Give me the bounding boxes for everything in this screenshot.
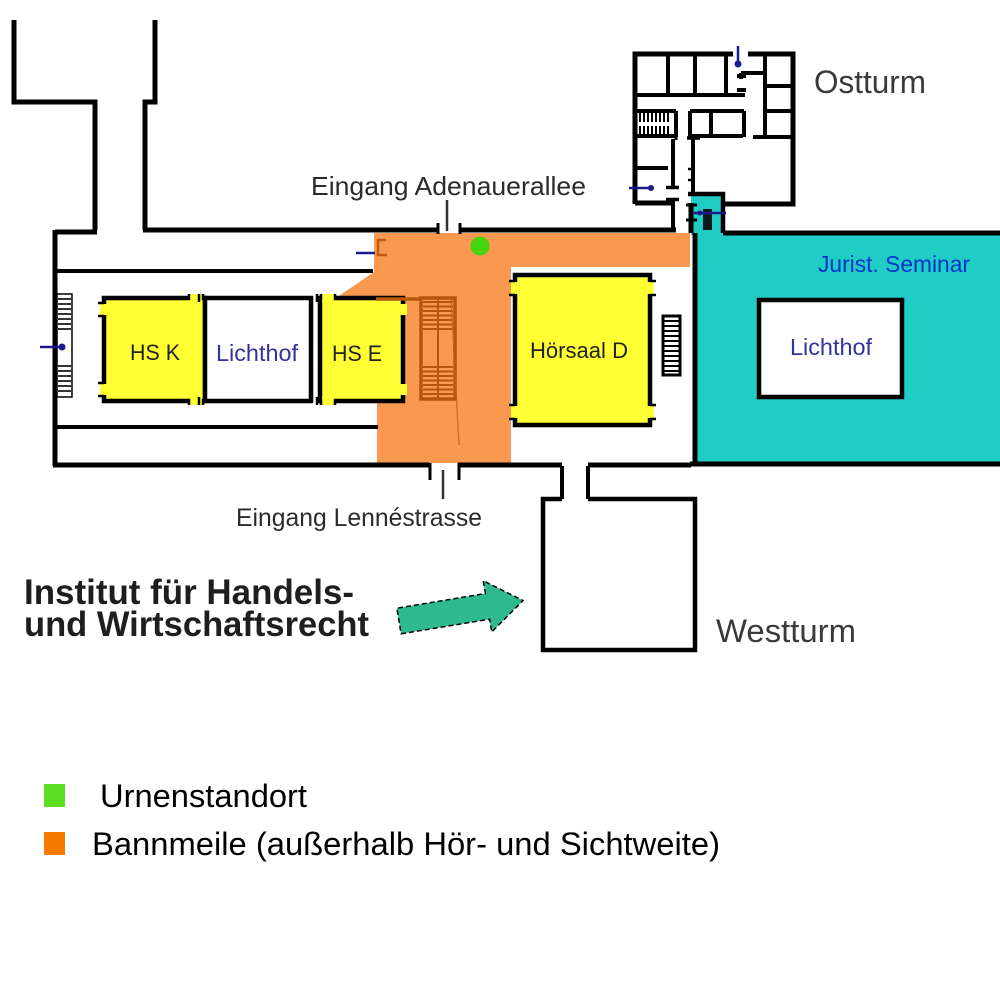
svg-text:Bannmeile (außerhalb Hör- und: Bannmeile (außerhalb Hör- und Sichtweite… [92, 826, 720, 862]
svg-text:Hörsaal D: Hörsaal D [530, 338, 628, 363]
svg-text:Jurist. Seminar: Jurist. Seminar [818, 251, 970, 277]
svg-text:Urnenstandort: Urnenstandort [100, 778, 307, 814]
svg-text:Eingang Lennéstrasse: Eingang Lennéstrasse [236, 504, 482, 532]
svg-text:und Wirtschaftsrecht: und Wirtschaftsrecht [24, 605, 369, 644]
svg-text:Ostturm: Ostturm [814, 64, 926, 100]
svg-text:HS K: HS K [130, 340, 180, 365]
svg-text:Lichthof: Lichthof [790, 334, 873, 360]
svg-text:HS E: HS E [332, 341, 382, 366]
svg-text:Eingang Adenauerallee: Eingang Adenauerallee [311, 171, 586, 201]
svg-text:Lichthof: Lichthof [216, 340, 299, 366]
svg-text:Westturm: Westturm [716, 613, 856, 649]
